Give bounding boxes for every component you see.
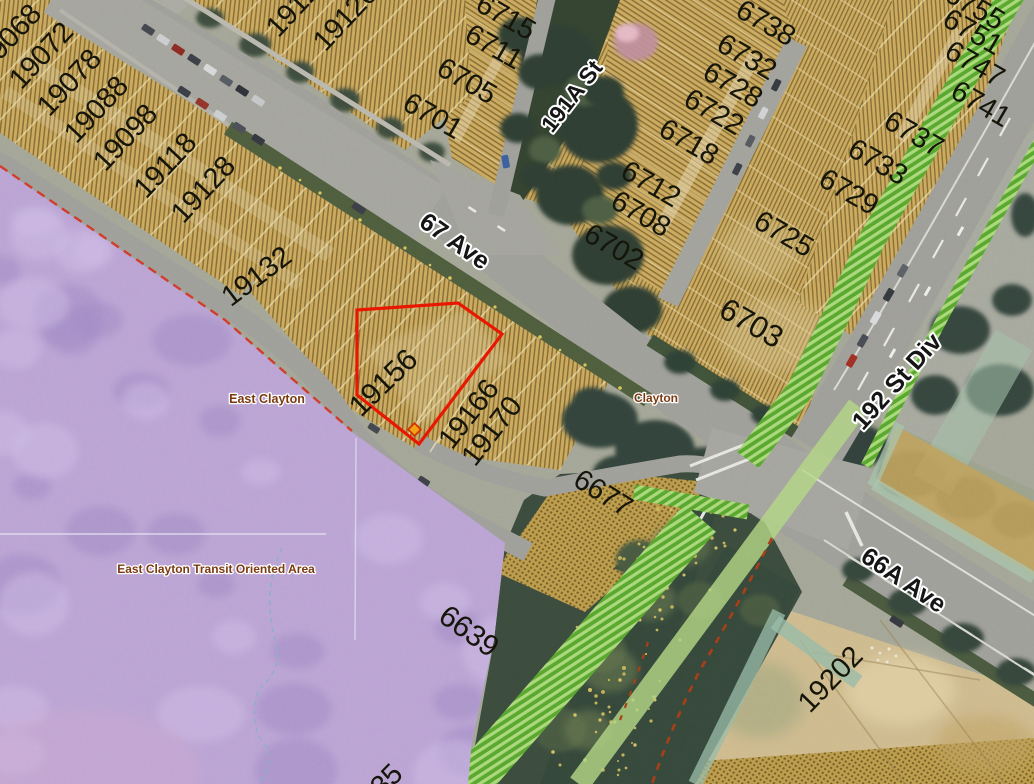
svg-text:East Clayton: East Clayton: [229, 392, 305, 406]
svg-text:East Clayton Transit Oriented: East Clayton Transit Oriented Area: [117, 562, 315, 576]
svg-text:Clayton: Clayton: [634, 391, 678, 405]
